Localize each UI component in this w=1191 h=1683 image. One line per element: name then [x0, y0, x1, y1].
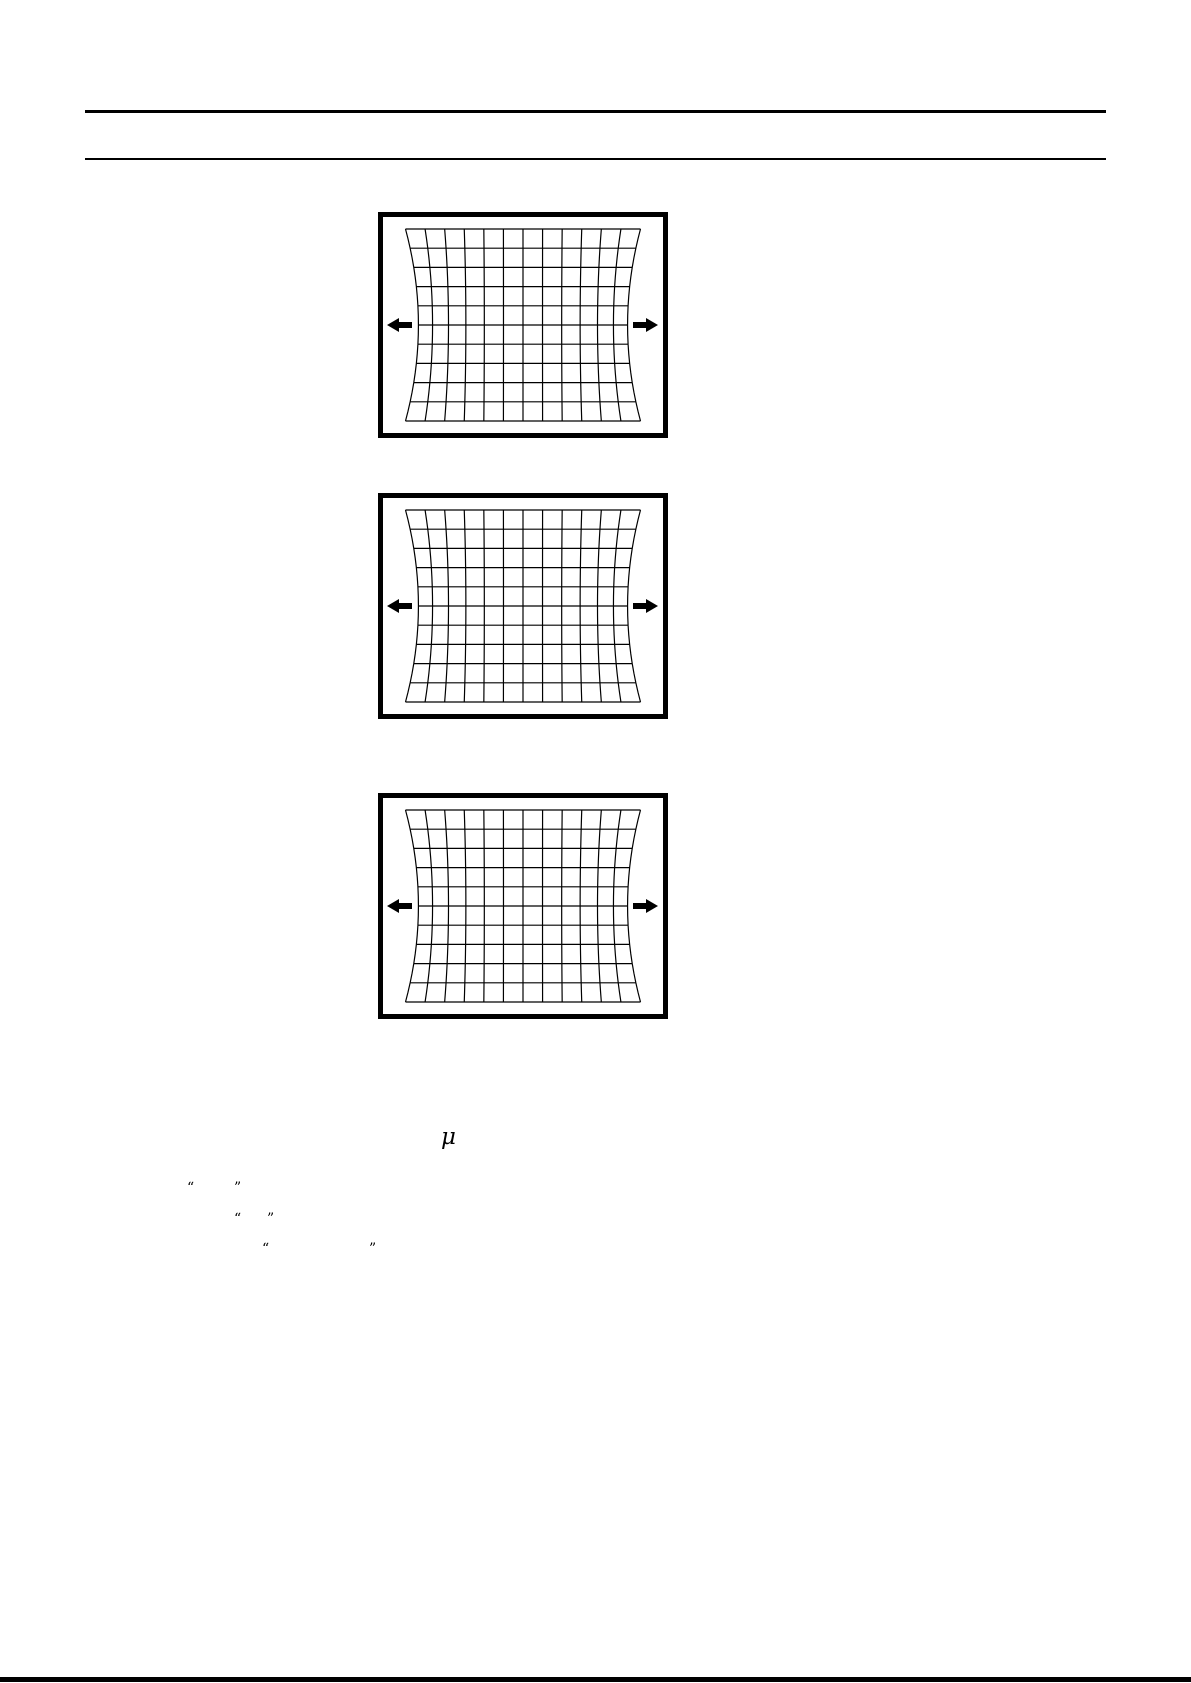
grid-lines: [406, 810, 641, 1002]
open-quote-line-3: “: [262, 1242, 269, 1256]
left-arrow-icon: [387, 318, 412, 332]
grid-lines: [406, 229, 641, 421]
distorted-grid-1: [383, 217, 663, 433]
pincushion-figure-1: [378, 212, 668, 438]
open-quote-line-2: “: [234, 1212, 241, 1226]
pincushion-figure-3: [378, 793, 668, 1019]
mu-symbol: μ: [441, 1126, 456, 1149]
grid-lines: [406, 510, 641, 702]
right-arrow-icon: [633, 599, 658, 613]
right-arrow-icon: [633, 899, 658, 913]
header-rule-bottom: [85, 158, 1106, 160]
page-bottom-bar: [0, 1677, 1191, 1682]
open-quote-line-1: “: [187, 1181, 194, 1195]
left-arrow-icon: [387, 899, 412, 913]
distorted-grid-3: [383, 798, 663, 1014]
close-quote-line-1: ”: [234, 1181, 241, 1195]
distorted-grid-2: [383, 498, 663, 714]
left-arrow-icon: [387, 599, 412, 613]
document-page: μ “ ” “ ” “ ”: [0, 0, 1191, 1683]
right-arrow-icon: [633, 318, 658, 332]
close-quote-line-2: ”: [267, 1212, 274, 1226]
header-rule-top: [85, 110, 1106, 113]
close-quote-line-3: ”: [369, 1242, 376, 1256]
pincushion-figure-2: [378, 493, 668, 719]
